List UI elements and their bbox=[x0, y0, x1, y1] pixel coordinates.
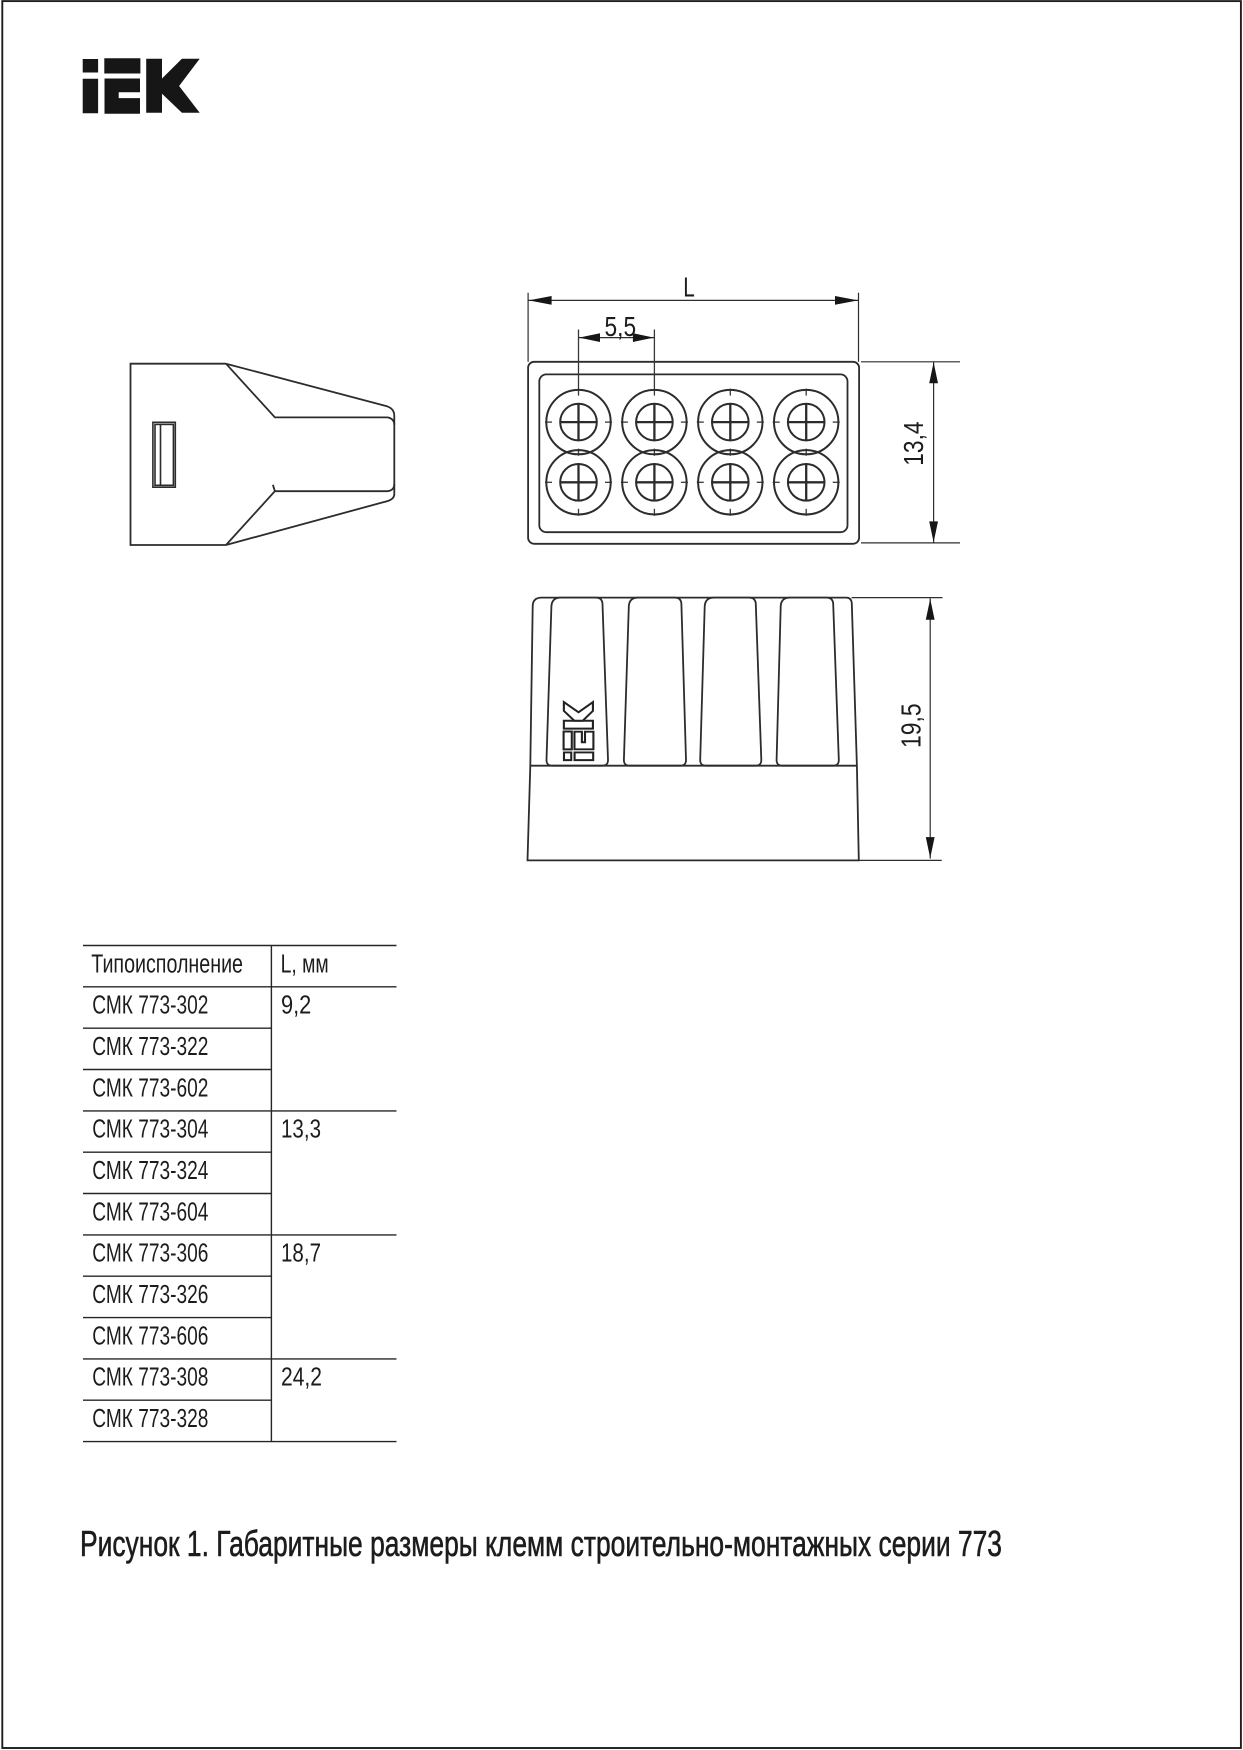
svg-text:СМК 773-302: СМК 773-302 bbox=[92, 992, 208, 1020]
svg-text:СМК 773-308: СМК 773-308 bbox=[92, 1364, 208, 1392]
svg-text:5,5: 5,5 bbox=[605, 311, 637, 342]
svg-text:18,7: 18,7 bbox=[281, 1240, 321, 1268]
svg-text:СМК 773-606: СМК 773-606 bbox=[92, 1322, 208, 1350]
svg-text:СМК 773-328: СМК 773-328 bbox=[92, 1405, 208, 1433]
svg-text:Рисунок 1. Габаритные размеры: Рисунок 1. Габаритные размеры клемм стро… bbox=[80, 1523, 1002, 1564]
svg-text:L: L bbox=[683, 271, 695, 302]
svg-text:13,3: 13,3 bbox=[281, 1116, 321, 1144]
svg-text:СМК 773-304: СМК 773-304 bbox=[92, 1116, 208, 1144]
svg-text:19,5: 19,5 bbox=[896, 703, 927, 748]
svg-text:СМК 773-326: СМК 773-326 bbox=[92, 1281, 208, 1309]
svg-text:Типоисполнение: Типоисполнение bbox=[91, 950, 243, 978]
svg-text:СМК 773-306: СМК 773-306 bbox=[92, 1240, 208, 1268]
svg-text:L, мм: L, мм bbox=[281, 950, 329, 978]
svg-text:СМК 773-324: СМК 773-324 bbox=[92, 1157, 208, 1185]
svg-text:СМК 773-604: СМК 773-604 bbox=[92, 1198, 208, 1226]
svg-text:13,4: 13,4 bbox=[898, 421, 929, 465]
svg-text:9,2: 9,2 bbox=[281, 992, 311, 1020]
svg-text:СМК 773-322: СМК 773-322 bbox=[92, 1033, 208, 1061]
svg-text:24,2: 24,2 bbox=[281, 1364, 322, 1392]
svg-text:СМК 773-602: СМК 773-602 bbox=[92, 1074, 208, 1102]
